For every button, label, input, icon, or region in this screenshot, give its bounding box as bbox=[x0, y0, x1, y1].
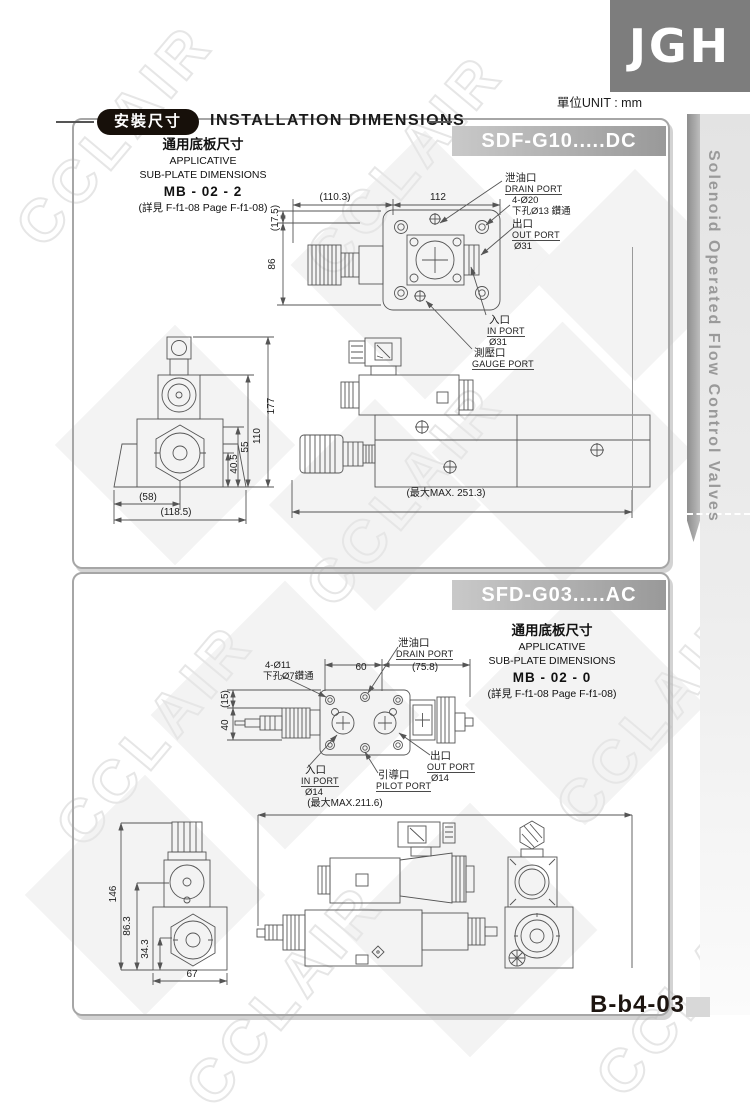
dim-label: 34.3 bbox=[141, 934, 151, 964]
dim-label: (110.3) bbox=[315, 193, 355, 203]
p2-end-view-drawing bbox=[492, 812, 642, 987]
dim-label: 146 bbox=[109, 879, 119, 909]
dim-label: (58) bbox=[130, 493, 166, 503]
subplate-title-cn: 通用底板尺寸 bbox=[452, 622, 652, 640]
holes-label: 4-Ø20 bbox=[512, 196, 538, 206]
subplate-line2: SUB-PLATE DIMENSIONS bbox=[452, 654, 652, 668]
dim-label: 40.5 bbox=[230, 449, 240, 479]
port-label-out-en: OUT PORT bbox=[512, 231, 560, 241]
subplate-info-2: 通用底板尺寸 APPLICATIVE SUB-PLATE DIMENSIONS … bbox=[452, 622, 652, 701]
header-rule-left bbox=[56, 121, 94, 123]
p1-front-view-drawing bbox=[100, 332, 310, 542]
holes-label: 下孔Ø7鑽通 bbox=[263, 672, 314, 682]
subplate-ref: (詳見 F-f1-08 Page F-f1-08) bbox=[88, 201, 318, 215]
port-label-drain-cn: 泄油口 bbox=[398, 638, 430, 649]
port-dia-label: Ø14 bbox=[305, 788, 323, 798]
header-rule-right bbox=[428, 121, 452, 123]
catalog-page: { "page": { "logo_text": "JGH", "unit_la… bbox=[0, 0, 750, 1033]
dim-label: 177 bbox=[267, 391, 277, 421]
port-label-in-en: IN PORT bbox=[301, 777, 339, 787]
dim-label: (最大MAX. 251.3) bbox=[385, 489, 507, 499]
dim-label: 60 bbox=[350, 663, 372, 673]
port-label-out-cn: 出口 bbox=[430, 751, 451, 762]
jgh-logo-text: JGH bbox=[629, 19, 731, 73]
dim-label: (75.8) bbox=[405, 663, 445, 673]
page-number: B-b4-03 bbox=[590, 991, 685, 1019]
holes-label: 4-Ø11 bbox=[265, 661, 291, 671]
model-banner-sdf-g10: SDF-G10.....DC bbox=[452, 126, 666, 156]
port-label-drain-en: DRAIN PORT bbox=[505, 185, 562, 195]
dim-label: (最大MAX.211.6) bbox=[290, 799, 400, 809]
dim-label: 110 bbox=[253, 421, 263, 451]
sidebar-accent-bar bbox=[687, 114, 700, 542]
port-label-in-cn: 入口 bbox=[305, 765, 326, 776]
port-dia-label: Ø31 bbox=[514, 242, 532, 252]
dim-label: 86 bbox=[268, 249, 278, 279]
subplate-line1: APPLICATIVE bbox=[452, 640, 652, 654]
dim-label: (118.5) bbox=[152, 508, 200, 518]
subplate-line1: APPLICATIVE bbox=[88, 154, 318, 168]
port-label-gauge-en: GAUGE PORT bbox=[472, 360, 534, 370]
port-label-pilot-en: PILOT PORT bbox=[376, 782, 431, 792]
subplate-model: MB - 02 - 0 bbox=[452, 669, 652, 687]
dim-label: 67 bbox=[180, 970, 204, 980]
subplate-title-cn: 通用底板尺寸 bbox=[88, 136, 318, 154]
dim-label: 112 bbox=[424, 193, 452, 203]
port-label-in-cn: 入口 bbox=[489, 315, 510, 326]
subplate-line2: SUB-PLATE DIMENSIONS bbox=[88, 168, 318, 182]
unit-label: 單位UNIT : mm bbox=[450, 92, 642, 111]
dim-label: (17.5) bbox=[271, 203, 281, 233]
extension-line bbox=[632, 247, 633, 511]
model-banner-sfd-g03: SFD-G03.....AC bbox=[452, 580, 666, 610]
subplate-ref: (詳見 F-f1-08 Page F-f1-08) bbox=[452, 687, 652, 701]
p2-front-view-drawing bbox=[108, 820, 258, 995]
dim-label: 55 bbox=[241, 432, 251, 462]
page-title: INSTALLATION DIMENSIONS bbox=[210, 112, 465, 130]
port-label-out-en: OUT PORT bbox=[427, 763, 475, 773]
dim-label: 40 bbox=[221, 710, 231, 740]
port-label-drain-cn: 泄油口 bbox=[505, 173, 537, 184]
port-label-out-cn: 出口 bbox=[512, 219, 533, 230]
page-number-square bbox=[686, 997, 710, 1017]
port-label-in-en: IN PORT bbox=[487, 327, 525, 337]
sidebar-title: Solenoid Operated Flow Control Valves bbox=[704, 150, 722, 580]
section-badge: 安裝尺寸 bbox=[97, 109, 199, 135]
port-label-pilot-cn: 引導口 bbox=[378, 770, 410, 781]
port-dia-label: Ø14 bbox=[431, 774, 449, 784]
subplate-info-1: 通用底板尺寸 APPLICATIVE SUB-PLATE DIMENSIONS … bbox=[88, 136, 318, 215]
jgh-logo: JGH bbox=[610, 0, 750, 92]
dim-label: 86.3 bbox=[123, 911, 133, 941]
port-label-gauge-cn: 測壓口 bbox=[474, 348, 506, 359]
subplate-model: MB - 02 - 2 bbox=[88, 183, 318, 201]
holes-label: 下孔Ø13 鑽通 bbox=[512, 207, 571, 217]
port-label-drain-en: DRAIN PORT bbox=[396, 650, 453, 660]
